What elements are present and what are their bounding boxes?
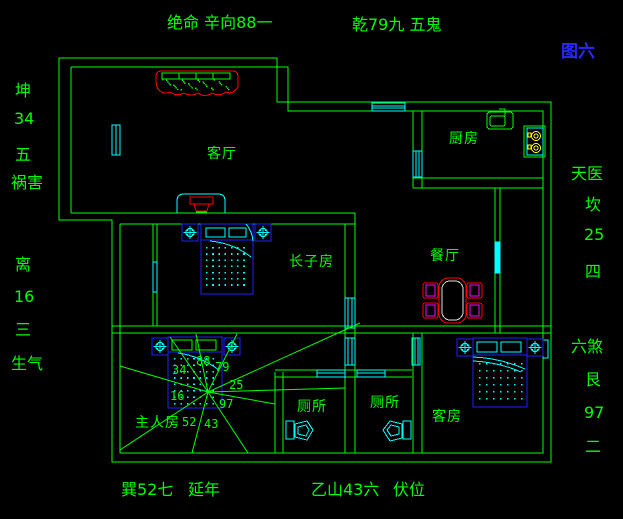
bed-guest [473,338,527,407]
lamp-icon [226,340,239,353]
chair-cushion [470,305,479,316]
tv-body [194,204,209,211]
compass-number-88: 88 [196,355,210,367]
chair-cushion [426,285,435,296]
toilet-tank [286,421,294,439]
burner-icon [532,144,541,153]
room-label-dining: 餐厅 [430,249,460,263]
planter-dividers [179,73,213,79]
label-kan: 坎 [585,197,601,213]
tv-cabinet [177,194,225,213]
blanket-dots [479,363,523,400]
pillow [501,342,521,352]
kitchen-top-window-hatch [372,106,405,108]
ray [120,366,208,392]
label-fuwei: 伏位 [393,482,425,498]
kitchen-top-window [372,103,405,111]
label-si: 四 [585,264,601,280]
label-huohai: 祸害 [11,175,43,191]
toilet-fixture-2 [383,421,411,441]
compass-center [206,390,209,393]
dining-set [423,278,482,323]
label-34: 34 [14,111,34,127]
compass-number-97: 97 [219,398,233,410]
planter-plants [162,79,229,91]
chair-cushion [470,285,479,296]
living-planter [156,71,238,96]
room-label-living: 客厅 [207,147,237,161]
stove [524,126,545,157]
eldest-east-window-hatch [348,298,352,328]
bed-outline [201,224,253,294]
label-yannian: 延年 [188,482,220,498]
compass-number-79: 79 [215,361,229,373]
label-wu: 五 [15,147,31,163]
dining-chairs [423,283,482,318]
compass-number-43: 43 [204,418,218,430]
room-label-guest: 客房 [432,410,462,424]
label-shengqi: 生气 [11,356,43,372]
compass-number-34: 34 [172,364,186,376]
label-gen: 艮 [585,372,601,388]
room-label-toilet1: 厕所 [297,400,327,414]
kitchen-west-window-hatch [416,151,419,177]
corridor-east-window-hatch [415,338,418,365]
toilet-fixture-1 [286,421,313,440]
pillow [206,228,225,237]
toilet-bowl-inner [387,425,399,436]
blanket-fold [473,357,525,372]
compass-number-25: 25 [229,379,243,391]
windows [112,103,548,377]
room-label-toilet2: 厕所 [370,396,400,410]
label-16: 16 [14,289,34,305]
blanket-dots [206,247,245,286]
lamp-icon [257,226,270,239]
bed-eldest-son [201,224,253,294]
lamp-icon [459,341,472,354]
tv-screen [190,197,213,204]
corridor-west-window [345,338,355,365]
label-tianyi: 天医 [571,166,603,182]
floor-plan-canvas: 绝命 辛向88一 乾79九 五鬼 图六 坤 34 五 祸害 离 16 三 生气 … [0,0,623,519]
dining-table-inner [442,281,463,320]
pillow [477,342,497,352]
burner-inner [534,134,538,138]
lamp-icon [529,341,542,354]
label-25: 25 [584,227,604,243]
compass-number-52: 52 [182,416,196,428]
toilet-tank [403,421,411,439]
chair-cushion [426,305,435,316]
top-label-left: 绝命 辛向88一 [167,15,272,31]
label-liusha: 六煞 [571,339,603,355]
corridor-west-window-hatch [348,338,352,365]
planter-outline [156,71,238,96]
lamp-icon [154,340,167,353]
label-97: 97 [584,405,604,421]
stove-knob [528,133,531,137]
burner-inner [534,146,538,150]
lamp-icon [184,226,197,239]
room-label-eldest: 长子房 [289,255,334,269]
compass-number-16: 16 [170,390,184,402]
label-yishan43liu: 乙山43六 [311,482,379,498]
burner-icon [532,132,541,141]
kitchen-west-window [413,151,422,177]
top-label-right: 乾79九 五鬼 [352,17,441,33]
figure-label: 图六 [561,44,595,61]
kitchen-sink [487,109,513,129]
label-san: 三 [15,322,31,338]
label-er: 二 [585,439,601,455]
toilet-bowl-inner [298,425,309,436]
sink-basin [490,116,505,126]
eldest-east-window [345,298,355,328]
stove-knob [528,145,531,149]
label-xun52qi: 巽52七 [121,482,173,498]
pillow [229,228,246,237]
dining-east-window [495,242,500,273]
room-label-master: 主人房 [135,416,180,430]
room-label-kitchen: 厨房 [449,132,479,146]
guest-east-window [543,340,548,358]
bed-outline [473,338,527,407]
label-li: 离 [15,257,31,273]
label-kun: 坤 [15,83,31,99]
eldest-west-window [153,262,157,292]
